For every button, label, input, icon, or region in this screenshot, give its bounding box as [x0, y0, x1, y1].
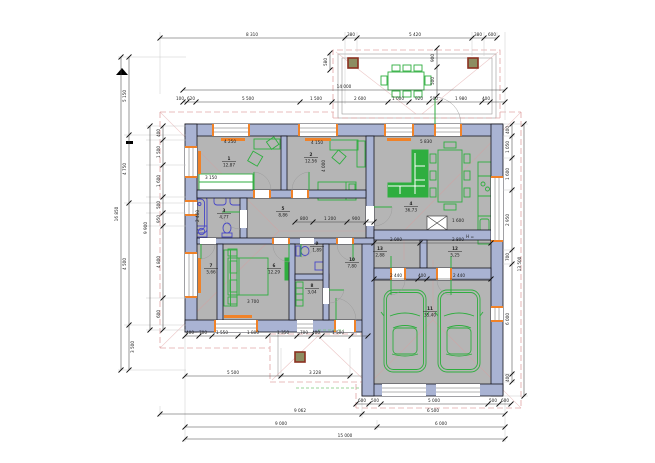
dimension-text: 3 228 — [309, 370, 321, 375]
dimension-text: 1 350 — [277, 330, 289, 335]
wall-room1-room2 — [281, 136, 287, 192]
room-area: 36,73 — [405, 208, 417, 213]
dimension-text: 3 150 — [205, 175, 217, 180]
dimension-text: 1 550 — [216, 330, 228, 335]
room-number: 1 — [228, 156, 231, 161]
dimension-text: 900 — [352, 216, 360, 221]
room-area: 3,04 — [307, 290, 317, 295]
dimension-text: 400 — [505, 126, 510, 134]
dimension-text: 8 310 — [246, 32, 258, 37]
dimension-text: 9 900 — [143, 222, 148, 234]
dimension-text: 400 — [482, 96, 490, 101]
dimension-text: H = — [466, 234, 474, 239]
terrace-dining-set — [381, 65, 431, 97]
dimension-text: 400 — [156, 129, 161, 137]
dimension-text: 950 — [156, 215, 161, 223]
dimension-text: 4 000 — [321, 160, 326, 172]
dimension-text: 580 — [323, 58, 328, 66]
dimension-text: 700 — [199, 330, 207, 335]
room-number: 2 — [310, 152, 313, 157]
dimension-text: 700 — [300, 330, 308, 335]
section-marker — [116, 68, 128, 75]
dimension-text: 13 500 — [517, 256, 522, 271]
dimension-text: 600 — [501, 398, 509, 403]
dimension-text: 400 — [505, 374, 510, 382]
room-area: 5,25 — [450, 253, 460, 258]
dimension-text: 1 200 — [324, 216, 336, 221]
room-number: 12 — [452, 246, 458, 251]
dimension-text: 4 750 — [122, 163, 127, 175]
room-number: 13 — [377, 246, 383, 251]
dimension-text: 9 062 — [294, 408, 306, 413]
dimension-text: 2 600 — [354, 96, 366, 101]
terrace-chair — [403, 91, 411, 97]
room-area: 8,86 — [278, 213, 288, 218]
room-area: 1,89 — [312, 248, 322, 253]
dimension-text: 1 600 — [452, 218, 464, 223]
dimension-text: 500 — [156, 201, 161, 209]
dimension-text: 2 440 — [453, 273, 465, 278]
dimension-text: 5 150 — [122, 90, 127, 102]
room-number: 10 — [349, 257, 355, 262]
room-number: 8 — [311, 283, 314, 288]
dimension-text: 1 000 — [392, 96, 404, 101]
dimension-text: 3 500 — [130, 341, 135, 353]
dimension-text: 500 — [371, 398, 379, 403]
dimension-text: 6 000 — [505, 313, 510, 325]
dimension-text: 4 800 — [156, 256, 161, 268]
dimension-text: 1 050 — [505, 141, 510, 153]
dimension-text: 620 — [187, 96, 195, 101]
dimension-text: 5 500 — [227, 370, 239, 375]
wall-room6-east — [289, 244, 295, 320]
dimension-text: 1 500 — [156, 146, 161, 158]
dimension-text: 900 — [430, 54, 435, 62]
terrace-post — [348, 58, 358, 68]
dimension-text: 1 500 — [332, 330, 344, 335]
dimension-text: 920 — [415, 96, 423, 101]
dimension-text: 1 600 — [156, 175, 161, 187]
room-area: 5,66 — [206, 270, 216, 275]
dimension-text: 800 — [300, 216, 308, 221]
dimension-text: 600 — [358, 398, 366, 403]
dimension-text: 380 — [347, 32, 355, 37]
room-area: 2,88 — [375, 253, 385, 258]
dimension-text: 600 — [156, 310, 161, 318]
dimension-text: 1 980 — [455, 96, 467, 101]
room-number: 9 — [316, 241, 319, 246]
dimension-text: 6 000 — [435, 421, 447, 426]
dimension-text: 600 — [488, 32, 496, 37]
room-number: 3 — [223, 208, 226, 213]
wall-room7-room6 — [217, 244, 223, 320]
dimension-text: 15 000 — [338, 433, 353, 438]
room-number: 11 — [427, 306, 433, 311]
dimension-text: 2 950 — [505, 214, 510, 226]
room-area: 12,56 — [305, 159, 317, 164]
dimension-text: 380 — [474, 32, 482, 37]
dimension-text: 2 000 — [390, 237, 402, 242]
room-number: 6 — [273, 263, 276, 268]
terrace-post — [468, 58, 478, 68]
room-number: 5 — [282, 206, 285, 211]
room-number: 7 — [210, 263, 213, 268]
dimension-text: 6 500 — [427, 408, 439, 413]
dimension-text: 2 440 — [390, 273, 402, 278]
dimension-text: 1 800 — [247, 330, 259, 335]
dimension-text: 2 800 — [452, 237, 464, 242]
dimension-text: 100 — [176, 96, 184, 101]
dimension-text: 1 600 — [505, 168, 510, 180]
dimension-text: 500 — [489, 398, 497, 403]
terrace-table — [388, 72, 424, 90]
dimension-text: 700 — [505, 253, 510, 261]
terrace-chair — [392, 65, 400, 71]
dimension-text: 2 400 — [195, 210, 200, 222]
dimension-text: 1 500 — [310, 96, 322, 101]
dimension-text: 500 — [430, 96, 438, 101]
dimension-text: 400 — [186, 330, 194, 335]
dimension-text: 4 500 — [122, 258, 127, 270]
room-number: 4 — [410, 201, 413, 206]
dimension-text: 5 500 — [242, 96, 254, 101]
wall-room8-room10 — [323, 244, 329, 320]
dimension-text: 5 830 — [420, 139, 432, 144]
dimension-text: 400 — [312, 330, 320, 335]
dimension-text: 400 — [418, 273, 426, 278]
wall-east — [491, 124, 503, 396]
floor-plan-canvas: 8 3103805 42038060014 0001006205 5001 50… — [0, 0, 655, 463]
wall-garage-west — [362, 240, 374, 396]
dimension-text: 4 250 — [224, 139, 236, 144]
dimension-text: 5 000 — [428, 398, 440, 403]
terrace-chair — [381, 76, 387, 85]
terrace-chair — [403, 65, 411, 71]
room-area: 12,29 — [268, 270, 280, 275]
dimension-text: 5 420 — [409, 32, 421, 37]
dimension-text: 16 850 — [114, 206, 119, 221]
dimension-text: 500 — [430, 77, 435, 85]
floor-plan-drawing: 8 3103805 42038060014 0001006205 5001 50… — [0, 0, 655, 463]
room-area: 7,80 — [347, 264, 357, 269]
level-marker — [126, 141, 133, 144]
porch-post — [295, 352, 305, 362]
dimension-text: 14 000 — [337, 84, 352, 89]
dimension-text: 3 700 — [247, 299, 259, 304]
room-area: 35,40 — [424, 313, 436, 318]
dimension-text: 9 000 — [275, 421, 287, 426]
terrace-chair — [414, 65, 422, 71]
wall-corridor-north — [197, 190, 366, 198]
dimension-text: 4 150 — [311, 140, 323, 145]
room-area: 4,77 — [219, 215, 229, 220]
room-area: 12,87 — [223, 163, 235, 168]
wall-room13-room12 — [420, 240, 427, 268]
